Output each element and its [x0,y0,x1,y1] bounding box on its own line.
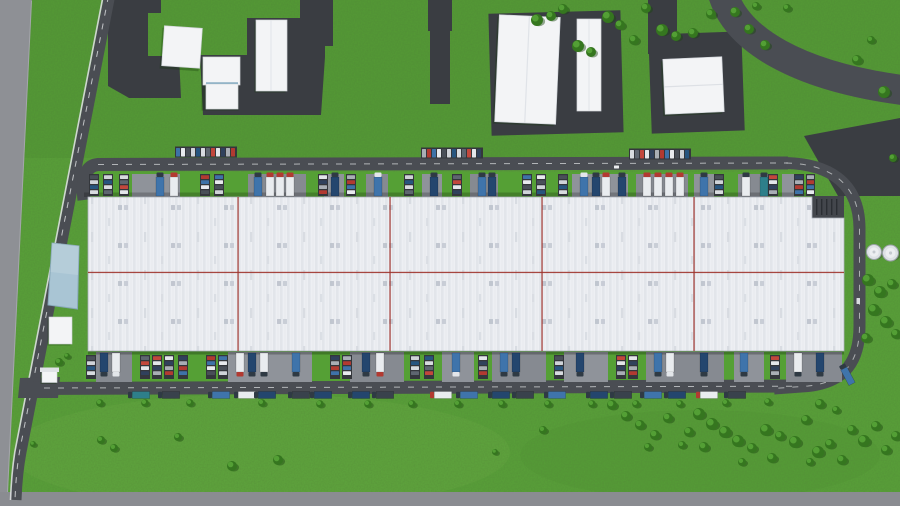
pr [140,355,150,379]
ht [348,392,370,399]
glass-joint [206,82,238,84]
pr [522,174,532,196]
vt [331,173,339,197]
car [857,298,861,304]
vt [666,353,674,377]
vt [362,353,370,377]
vt [156,173,164,197]
ht [128,392,150,399]
pr [89,174,99,196]
vt [452,353,460,377]
ht [372,392,394,399]
vt [742,173,750,197]
ht [208,392,230,399]
pr [206,355,216,379]
vt [266,173,274,197]
pr [342,355,352,379]
vt [700,173,708,197]
pr [152,355,162,379]
pr [200,174,210,196]
vt [654,353,662,377]
vt [740,353,748,377]
vt [676,173,684,197]
vt [248,353,256,377]
pr [164,355,174,379]
pr [103,174,113,196]
ht [456,392,478,399]
pr [86,355,96,379]
cr [175,147,237,158]
ht [288,392,310,399]
site-render [0,0,900,506]
vt [816,353,824,377]
vt [580,173,588,197]
pr [558,174,568,196]
car [614,166,619,169]
pr [768,174,778,196]
vt [376,353,384,377]
pr [628,355,638,379]
dock-door [831,199,832,215]
roof-joint [271,20,272,91]
ht [430,392,452,399]
vt [292,353,300,377]
pr [616,355,626,379]
vt [512,353,520,377]
dock-door [821,199,822,215]
vt [478,173,486,197]
firewall-line [693,197,694,351]
ht [512,392,534,399]
pr [404,174,414,196]
offsite-area-bottom [0,492,900,506]
neighbor-building [203,57,240,85]
vt [618,173,626,197]
vt [286,173,294,197]
vt [170,173,178,197]
gatehouse [42,371,57,383]
wall-shadow [88,351,844,355]
aerial-render [0,0,900,506]
vt [794,353,802,377]
ht [696,392,718,399]
ht [664,392,686,399]
pr [119,174,129,196]
ht [724,392,746,399]
ht [158,392,180,399]
firewall-line [541,197,542,351]
vt [276,173,284,197]
cr [421,148,483,159]
pr [714,174,724,196]
neighbor-building [206,84,238,109]
firewall-line [237,197,238,351]
pr [330,355,340,379]
vt [700,353,708,377]
firewall-line [88,272,844,273]
dock-door [836,199,837,215]
ht [544,392,566,399]
roof-units [88,197,844,351]
vt [654,173,662,197]
ht [234,392,256,399]
neighbor-building [162,26,203,69]
ht [640,392,662,399]
pr [554,355,564,379]
vt [260,353,268,377]
pr [346,174,356,196]
pr [478,355,488,379]
pr [318,174,328,196]
gate-canopy [40,368,59,373]
dock-door [816,199,817,215]
pr [424,355,434,379]
vt [592,173,600,197]
ht [254,392,276,399]
pr [214,174,224,196]
vt [112,353,120,377]
firewall-line [389,197,390,351]
neighbor-yard [430,26,450,104]
vt [665,173,673,197]
pr [794,174,804,196]
ht [488,392,510,399]
vt [374,173,382,197]
ht [610,392,632,399]
pond-highlight [51,243,80,275]
vt [100,353,108,377]
pr [452,174,462,196]
vt [643,173,651,197]
pr [178,355,188,379]
vt [602,173,610,197]
roof-joint [589,19,590,111]
dock-apron [564,352,608,382]
vt [500,353,508,377]
vt [488,173,496,197]
vt [236,353,244,377]
vt [576,353,584,377]
neighbor-yard [300,0,333,46]
pr [218,355,228,379]
dock-apron [734,352,764,382]
pr [806,174,815,196]
cr [629,149,691,160]
ht [586,392,608,399]
utility-building [49,317,72,344]
vt [430,173,438,197]
dock-door [826,199,827,215]
vt [254,173,262,197]
pr [770,355,780,379]
vt [760,173,768,197]
pr [536,174,546,196]
pr [410,355,420,379]
ht [310,392,332,399]
